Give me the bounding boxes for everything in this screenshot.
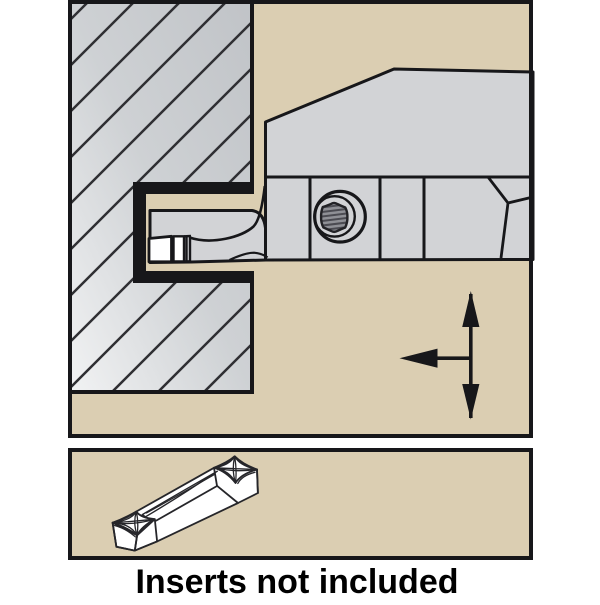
- svg-text:Inserts not included: Inserts not included: [135, 563, 458, 600]
